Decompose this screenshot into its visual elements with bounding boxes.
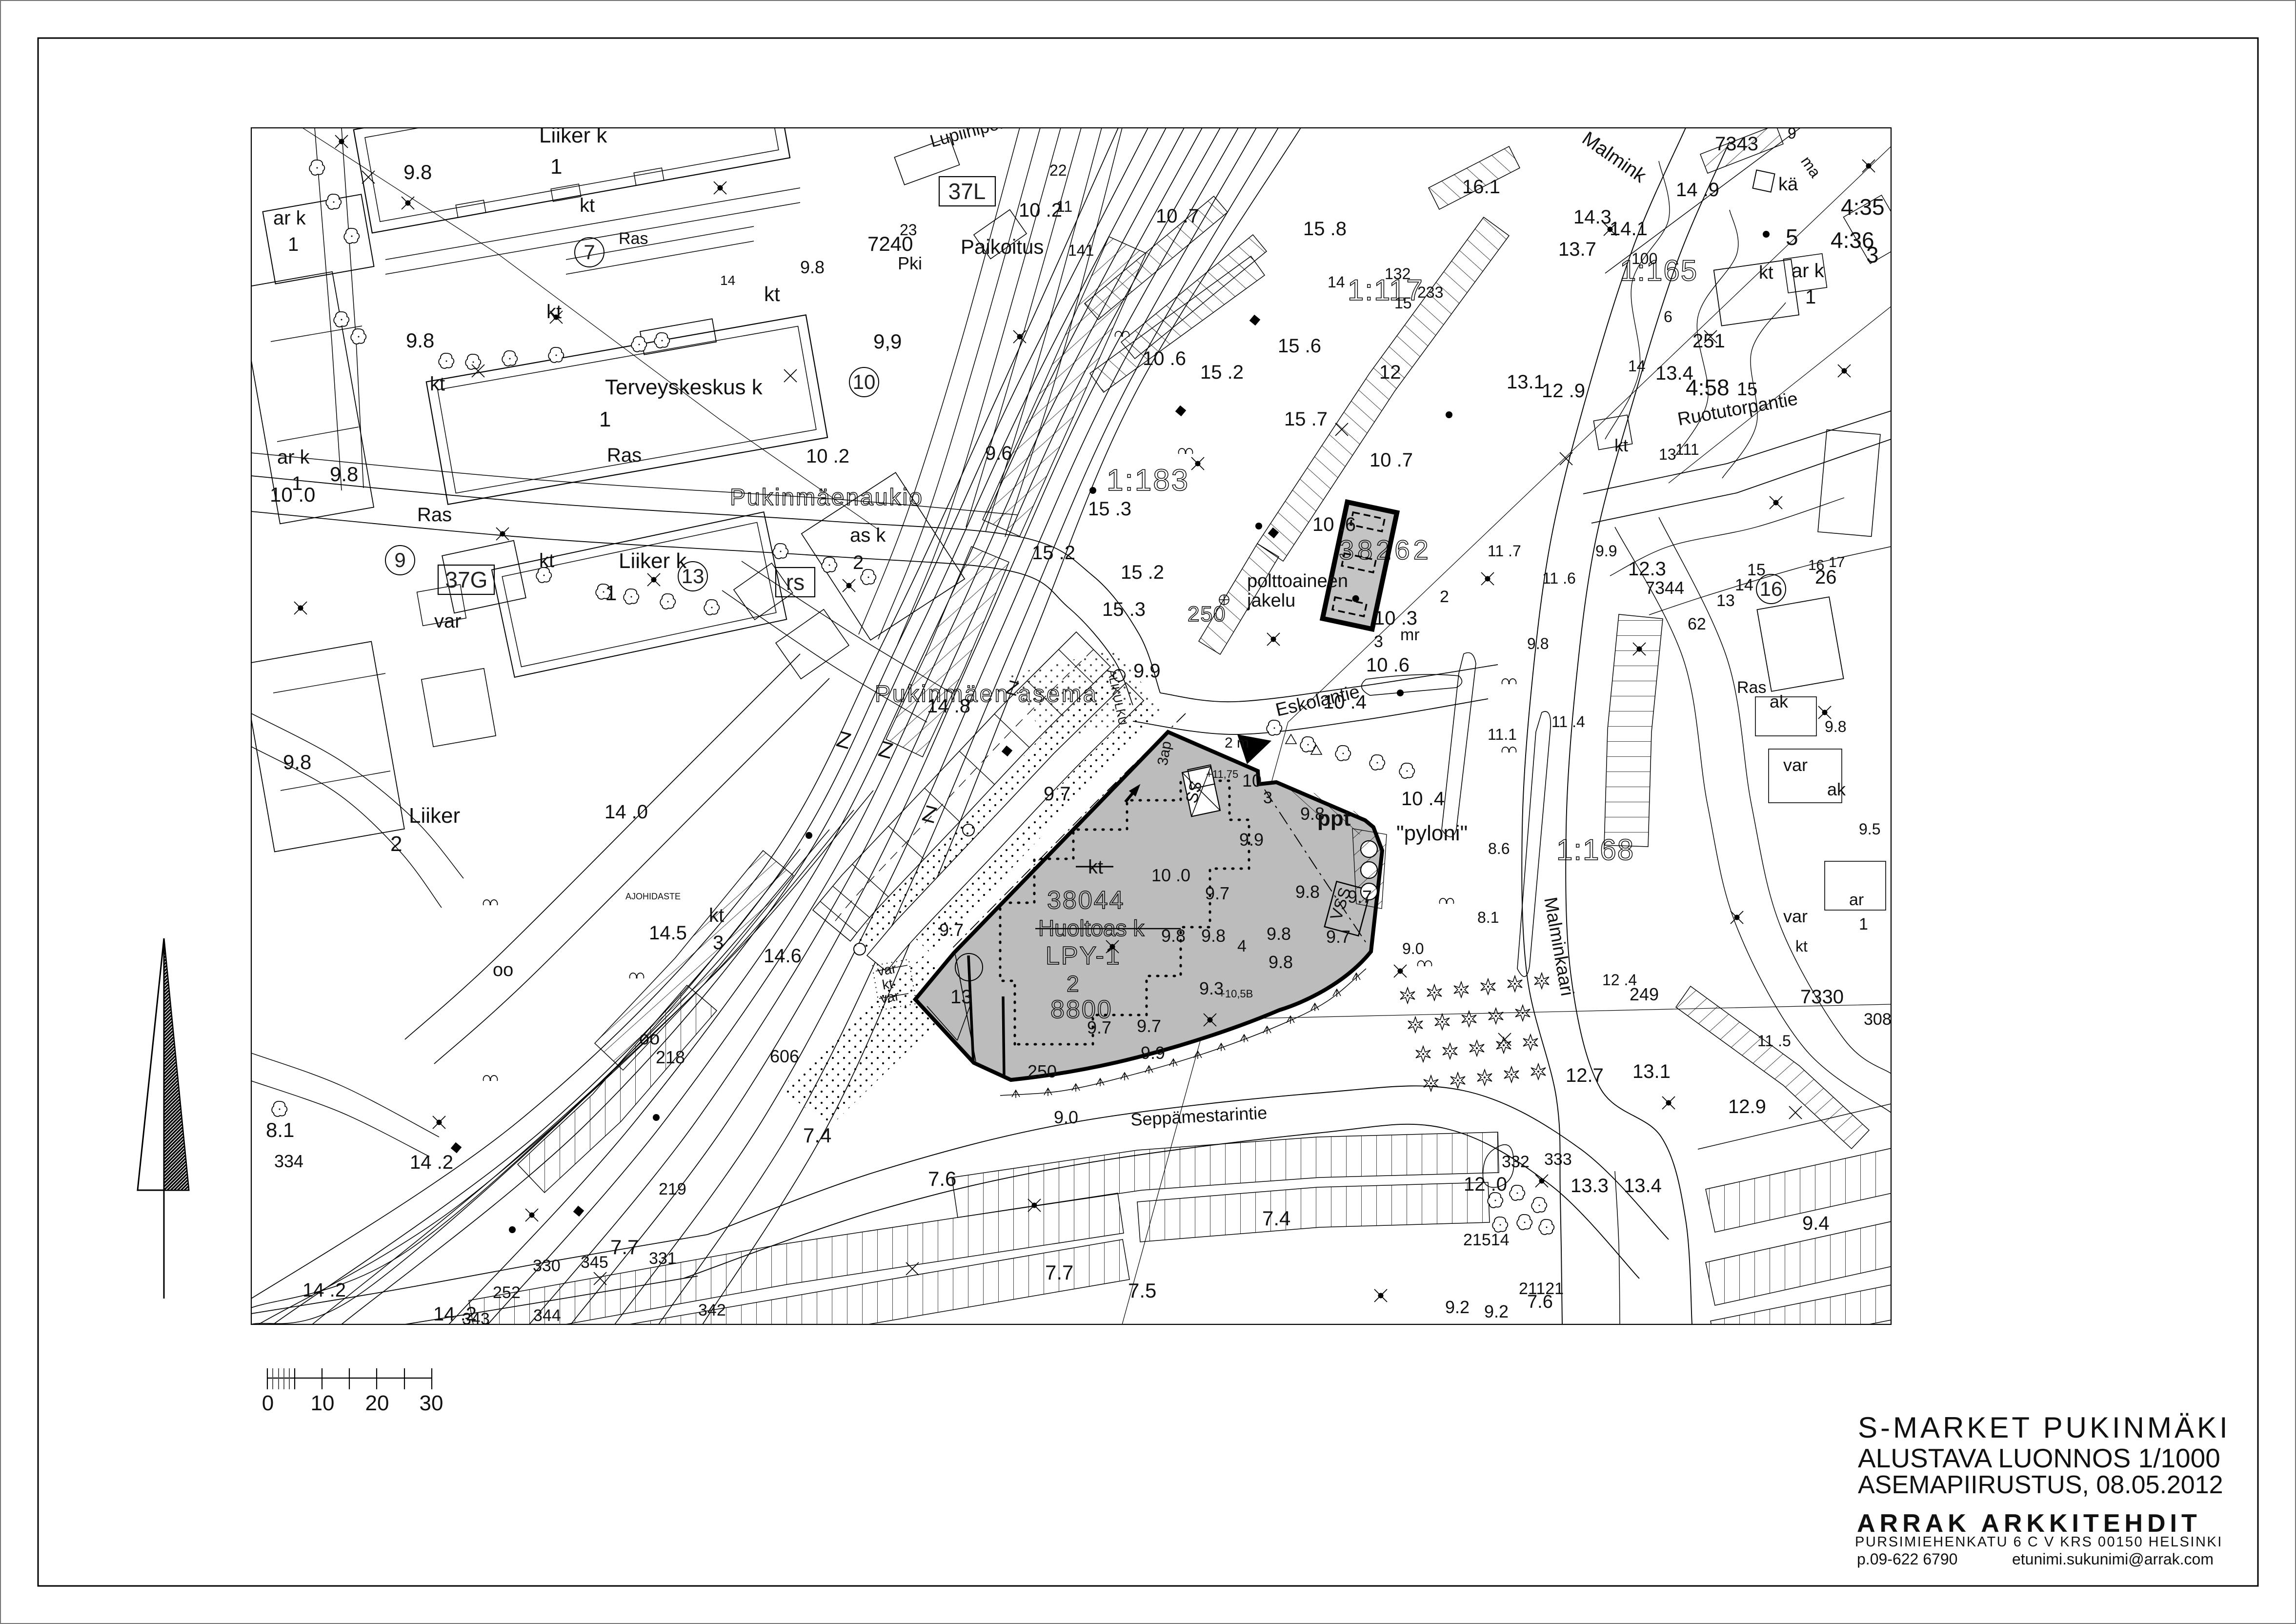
svg-text:3: 3 (1374, 632, 1383, 651)
svg-text:ar k: ar k (277, 447, 310, 468)
svg-text:2 m: 2 m (1225, 735, 1249, 751)
svg-text:kt: kt (764, 283, 780, 305)
svg-text:S-MARKET PUKINMÄKI: S-MARKET PUKINMÄKI (1858, 1411, 2231, 1444)
svg-text:11 .6: 11 .6 (1542, 569, 1576, 587)
svg-text:14.5: 14.5 (649, 922, 687, 944)
svg-text:2: 2 (390, 832, 402, 856)
svg-text:kt: kt (1759, 263, 1773, 283)
svg-text:14.6: 14.6 (764, 945, 802, 967)
svg-text:kt: kt (1614, 435, 1628, 455)
svg-text:9.7: 9.7 (1205, 883, 1229, 903)
svg-text:11 .7: 11 .7 (1488, 542, 1521, 560)
svg-text:2: 2 (1440, 588, 1449, 606)
svg-text:1:165: 1:165 (1620, 254, 1698, 287)
svg-text:12 .9: 12 .9 (1542, 380, 1585, 402)
svg-text:10 .2: 10 .2 (806, 446, 849, 467)
svg-text:PURSIMIEHENKATU 6 C V KRS 001: PURSIMIEHENKATU 6 C V KRS 00150 HELSINKI (1855, 1534, 2223, 1550)
svg-text:331: 331 (649, 1249, 677, 1268)
svg-text:15 .6: 15 .6 (1278, 335, 1321, 357)
svg-text:7.4: 7.4 (1262, 1207, 1290, 1230)
svg-text:8.6: 8.6 (1488, 840, 1510, 857)
svg-text:15 .3: 15 .3 (1088, 498, 1131, 520)
svg-text:9.8: 9.8 (283, 751, 311, 773)
svg-text:var: var (434, 610, 462, 632)
svg-text:1: 1 (292, 473, 302, 494)
svg-text:7.6: 7.6 (928, 1167, 956, 1190)
svg-text:14.1: 14.1 (1610, 218, 1648, 240)
svg-text:14 .0: 14 .0 (604, 801, 648, 823)
svg-text:15 .7: 15 .7 (1284, 408, 1328, 430)
svg-text:7.7: 7.7 (610, 1236, 639, 1259)
svg-text:9.8: 9.8 (406, 329, 434, 352)
svg-text:12.9: 12.9 (1728, 1096, 1766, 1117)
svg-text:7.4: 7.4 (803, 1124, 831, 1147)
svg-text:10 .2: 10 .2 (1019, 200, 1062, 221)
svg-text:12 .4: 12 .4 (1602, 971, 1637, 989)
svg-text:9,9: 9,9 (873, 330, 902, 353)
svg-text:38044: 38044 (1047, 886, 1125, 914)
svg-text:345: 345 (581, 1253, 608, 1272)
svg-text:10 .6: 10 .6 (1366, 654, 1410, 676)
svg-text:4: 4 (1237, 937, 1247, 955)
svg-text:AJOHIDASTE: AJOHIDASTE (625, 892, 681, 901)
svg-text:9.7: 9.7 (1326, 927, 1350, 947)
svg-text:9.8: 9.8 (403, 161, 432, 183)
svg-text:Paikoitus: Paikoitus (961, 235, 1044, 258)
svg-text:3: 3 (1866, 242, 1879, 267)
svg-text:10 .4: 10 .4 (1401, 788, 1445, 810)
svg-text:"pyloni": "pyloni" (1396, 821, 1468, 845)
svg-text:var: var (1783, 755, 1808, 775)
svg-text:9.9: 9.9 (1133, 660, 1161, 682)
svg-text:Liiker: Liiker (409, 804, 460, 828)
svg-text:9.9: 9.9 (1239, 830, 1264, 850)
svg-text:etunimi.sukunimi@arrak.com: etunimi.sukunimi@arrak.com (2012, 1550, 2214, 1568)
svg-text:10 .6: 10 .6 (1143, 348, 1186, 369)
svg-text:kä: kä (1778, 174, 1798, 195)
svg-text:10: 10 (1242, 771, 1262, 791)
svg-text:jakelu: jakelu (1247, 590, 1295, 611)
svg-text:38262: 38262 (1339, 534, 1432, 565)
svg-text:9.8: 9.8 (1825, 718, 1846, 735)
svg-text:ar k: ar k (1792, 260, 1825, 282)
svg-text:15 .2: 15 .2 (1121, 562, 1164, 583)
svg-text:13.1: 13.1 (1507, 371, 1545, 393)
svg-text:10 .0: 10 .0 (1151, 865, 1190, 885)
svg-text:polttoaineen: polttoaineen (1247, 571, 1348, 591)
svg-text:10 .6: 10 .6 (1312, 514, 1356, 535)
svg-text:ak: ak (1827, 779, 1846, 799)
svg-text:10: 10 (853, 370, 876, 393)
svg-text:218: 218 (656, 1047, 685, 1067)
svg-text:ppt: ppt (1317, 807, 1351, 831)
svg-text:22: 22 (1049, 162, 1067, 179)
svg-text:7: 7 (584, 241, 595, 264)
svg-text:13: 13 (1716, 591, 1735, 610)
svg-text:4:58: 4:58 (1686, 375, 1730, 400)
svg-text:8.1: 8.1 (266, 1118, 294, 1141)
svg-text:Pki: Pki (898, 253, 922, 273)
svg-text:10 .7: 10 .7 (1370, 449, 1413, 471)
svg-text:ak: ak (1770, 691, 1789, 711)
svg-text:3: 3 (713, 932, 724, 954)
svg-text:14: 14 (720, 273, 735, 288)
svg-text:252: 252 (493, 1283, 521, 1302)
svg-text:kt: kt (580, 195, 595, 216)
svg-text:1:168: 1:168 (1556, 833, 1634, 866)
svg-text:14: 14 (1628, 357, 1646, 375)
svg-text:9.2: 9.2 (1484, 1301, 1509, 1321)
svg-text:11: 11 (1056, 198, 1072, 215)
svg-text:14 .9: 14 .9 (1676, 179, 1719, 201)
svg-text:Liiker k: Liiker k (619, 549, 687, 573)
svg-text:rs: rs (786, 569, 805, 595)
svg-text:Pukinmäenaukio: Pukinmäenaukio (730, 485, 924, 510)
svg-text:12: 12 (1379, 362, 1401, 383)
svg-text:250: 250 (1027, 1061, 1057, 1081)
svg-text:333: 333 (1544, 1150, 1572, 1169)
svg-text:oo: oo (639, 1028, 660, 1049)
svg-text:9.9: 9.9 (1595, 542, 1617, 560)
svg-text:8800: 8800 (1050, 995, 1113, 1024)
svg-text:ASEMAPIIRUSTUS, 08.05.201: ASEMAPIIRUSTUS, 08.05.2012 (1858, 1471, 2223, 1499)
svg-text:14: 14 (1735, 576, 1753, 594)
svg-text:308: 308 (1864, 1010, 1892, 1029)
svg-text:1: 1 (599, 407, 611, 431)
svg-text:9.8: 9.8 (330, 463, 358, 486)
svg-text:9: 9 (394, 548, 405, 571)
svg-text:10 .7: 10 .7 (1156, 205, 1199, 227)
svg-text:Terveyskeskus k: Terveyskeskus k (605, 375, 763, 399)
svg-text:1: 1 (550, 155, 562, 179)
svg-text:kt: kt (546, 301, 562, 323)
svg-text:21121: 21121 (1519, 1279, 1564, 1298)
svg-text:9.8: 9.8 (1269, 952, 1293, 972)
svg-text:15 .3: 15 .3 (1102, 599, 1146, 620)
svg-text:14 .2: 14 .2 (302, 1279, 346, 1301)
svg-text:342: 342 (698, 1301, 726, 1319)
svg-text:332: 332 (1502, 1153, 1530, 1171)
svg-text:141: 141 (1068, 242, 1094, 259)
svg-text:16.1: 16.1 (1462, 176, 1500, 198)
svg-text:7344: 7344 (1645, 578, 1684, 598)
svg-text:330: 330 (533, 1257, 561, 1275)
svg-text:23: 23 (900, 221, 917, 239)
svg-text:mr: mr (1400, 626, 1420, 644)
svg-text:344: 344 (533, 1306, 561, 1325)
svg-text:4:35: 4:35 (1841, 194, 1885, 220)
svg-text:12.7: 12.7 (1566, 1065, 1604, 1086)
svg-text:250: 250 (1188, 602, 1226, 626)
svg-text:1: 1 (1805, 286, 1816, 308)
svg-text:2: 2 (853, 552, 864, 573)
svg-text:var: var (1783, 906, 1808, 926)
svg-text:1:183: 1:183 (1107, 464, 1189, 497)
svg-text:5: 5 (1786, 224, 1798, 250)
svg-text:7.5: 7.5 (1128, 1279, 1156, 1302)
svg-text:30: 30 (420, 1391, 443, 1415)
svg-text:0: 0 (262, 1391, 274, 1415)
svg-text:6: 6 (1664, 308, 1672, 325)
svg-text:7330: 7330 (1800, 986, 1844, 1008)
svg-text:9.7: 9.7 (1137, 1016, 1161, 1036)
svg-text:9.6: 9.6 (985, 443, 1012, 464)
svg-text:11 .4: 11 .4 (1551, 713, 1585, 731)
svg-text:37G: 37G (445, 567, 488, 592)
svg-text:21514: 21514 (1463, 1231, 1510, 1249)
svg-text:13: 13 (950, 986, 972, 1008)
svg-text:9.2: 9.2 (1445, 1297, 1470, 1317)
svg-text:13.7: 13.7 (1558, 239, 1596, 260)
svg-text:251: 251 (1692, 330, 1725, 352)
svg-text:9.8: 9.8 (1295, 882, 1320, 902)
svg-text:9.0: 9.0 (1054, 1107, 1078, 1127)
svg-text:16: 16 (1760, 577, 1783, 600)
svg-text:ALUSTAVA LUONNOS 1/1000: ALUSTAVA LUONNOS 1/1000 (1858, 1443, 2220, 1473)
svg-text:14.3: 14.3 (1573, 206, 1611, 228)
svg-text:2: 2 (1067, 971, 1079, 996)
svg-text:13.3: 13.3 (1571, 1175, 1609, 1197)
svg-text:9.5: 9.5 (1859, 820, 1880, 838)
svg-text:12 .0: 12 .0 (1464, 1174, 1507, 1195)
svg-text:12.3: 12.3 (1628, 558, 1666, 580)
svg-text:9.8: 9.8 (1201, 926, 1226, 946)
svg-text:1: 1 (1859, 915, 1868, 934)
svg-text:9.8: 9.8 (800, 257, 825, 277)
svg-text:+11,75: +11,75 (1206, 768, 1238, 780)
svg-text:Pukinmäen asema: Pukinmäen asema (875, 681, 1098, 707)
svg-text:9.7: 9.7 (939, 920, 964, 940)
svg-text:15 .8: 15 .8 (1303, 218, 1347, 240)
svg-text:p.09-622 6790: p.09-622 6790 (1857, 1550, 1957, 1568)
svg-text:Ras: Ras (1737, 678, 1766, 697)
svg-text:LPY-1: LPY-1 (1046, 942, 1121, 970)
svg-text:Ras: Ras (619, 229, 648, 248)
svg-text:ar: ar (1849, 891, 1864, 909)
svg-text:17: 17 (1829, 554, 1845, 570)
svg-text:15 .2: 15 .2 (1032, 542, 1075, 564)
svg-text:219: 219 (659, 1180, 686, 1198)
svg-text:13.4: 13.4 (1624, 1175, 1662, 1197)
svg-text:14 .2: 14 .2 (410, 1152, 453, 1173)
svg-text:3: 3 (1263, 789, 1272, 807)
svg-text:9.8: 9.8 (1527, 635, 1549, 652)
svg-text:1:117: 1:117 (1348, 274, 1424, 306)
svg-text:334: 334 (274, 1151, 303, 1171)
svg-text:9.9: 9.9 (1141, 1043, 1165, 1063)
svg-text:37L: 37L (948, 179, 986, 204)
svg-text:1: 1 (288, 234, 299, 255)
svg-text:oo: oo (493, 960, 513, 980)
svg-text:Ras: Ras (607, 445, 642, 466)
svg-text:kt: kt (430, 373, 445, 395)
svg-text:20: 20 (365, 1391, 389, 1415)
svg-text:Ras: Ras (417, 504, 452, 526)
svg-text:ar k: ar k (273, 207, 306, 229)
svg-text:8.1: 8.1 (1477, 909, 1499, 926)
svg-text:15 .2: 15 .2 (1200, 362, 1244, 383)
svg-text:ARRAK ARKKITEHDIT: ARRAK ARKKITEHDIT (1857, 1509, 2201, 1538)
svg-text:9.4: 9.4 (1802, 1213, 1830, 1234)
svg-text:7343: 7343 (1715, 133, 1758, 155)
svg-text:62: 62 (1688, 615, 1706, 633)
svg-text:13.1: 13.1 (1632, 1061, 1671, 1082)
svg-text:11.1: 11.1 (1488, 726, 1517, 743)
svg-text:kt: kt (709, 905, 724, 926)
svg-text:11 .5: 11 .5 (1757, 1032, 1791, 1050)
svg-text:13: 13 (1659, 446, 1676, 463)
svg-text:kt: kt (539, 550, 554, 571)
svg-text:10: 10 (311, 1391, 335, 1415)
svg-text:16: 16 (1808, 557, 1824, 573)
svg-text:14: 14 (1328, 273, 1345, 291)
svg-text:111: 111 (1675, 441, 1699, 458)
svg-text:1: 1 (605, 581, 617, 605)
svg-text:9.0: 9.0 (1402, 940, 1424, 957)
svg-text:9.7: 9.7 (1044, 783, 1071, 805)
svg-text:606: 606 (770, 1046, 799, 1066)
svg-text:7.7: 7.7 (1045, 1261, 1073, 1284)
svg-text:9.8: 9.8 (1267, 924, 1291, 944)
svg-text:+10,5B: +10,5B (1219, 988, 1253, 1000)
svg-text:kt: kt (1795, 937, 1808, 955)
svg-text:as k: as k (850, 525, 886, 546)
